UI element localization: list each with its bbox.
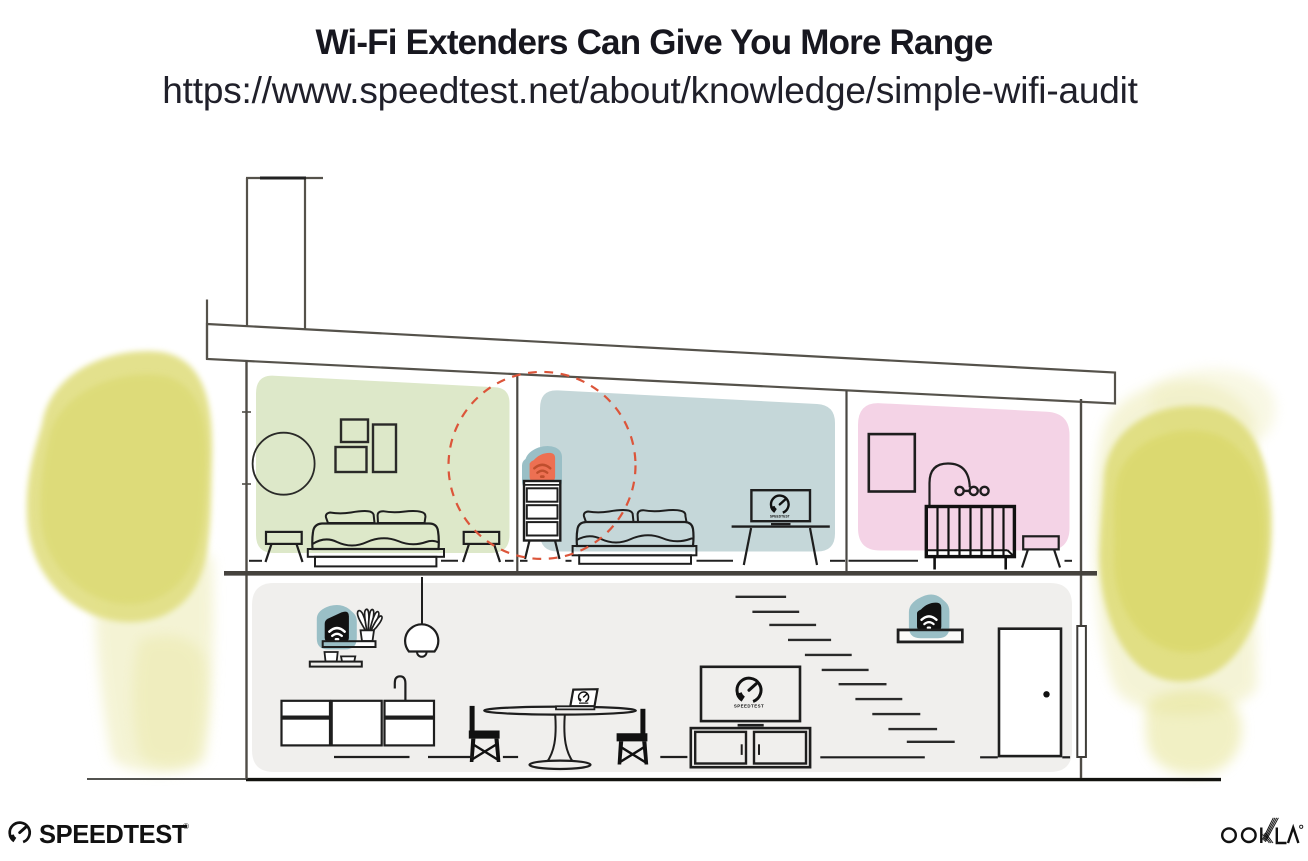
svg-text:Wi-Fi Extenders Can Give You M: Wi-Fi Extenders Can Give You More Range (315, 23, 992, 62)
svg-text:®: ® (183, 822, 189, 831)
svg-text:https://www.speedtest.net/abou: https://www.speedtest.net/about/knowledg… (162, 70, 1138, 111)
svg-text:SPEEDTEST: SPEEDTEST (39, 821, 188, 849)
svg-text:SPEEDTEST: SPEEDTEST (734, 703, 764, 708)
svg-text:SPEEDTEST: SPEEDTEST (770, 515, 790, 519)
